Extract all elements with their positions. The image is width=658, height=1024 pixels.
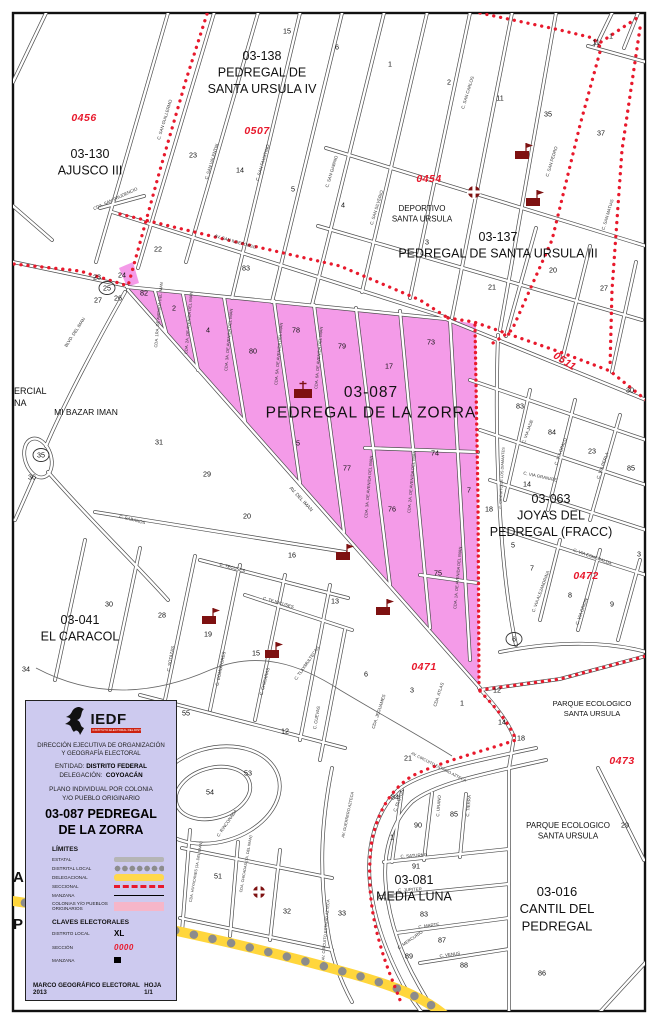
org-line1: DIRECCIÓN EJECUTIVA DE ORGANIZACIÓN	[26, 742, 176, 750]
block-number: 6	[364, 670, 368, 679]
colonia-label: SANTA URSULA	[538, 832, 599, 841]
colonia-label: SANTA URSULA	[564, 709, 621, 718]
block-number: 1	[388, 60, 392, 69]
iedf-logo: IEDF INSTITUTO ELECTORAL DEL DISTRITO FE…	[26, 706, 176, 738]
block-number: 3	[425, 238, 429, 247]
delegacional-swatch	[114, 874, 164, 881]
plano-line1: PLANO INDIVIDUAL POR COLONIA	[26, 786, 176, 795]
colonia-label: EL CARACOL	[41, 630, 120, 644]
block-number: 21	[488, 283, 496, 292]
legend-panel: IEDF INSTITUTO ELECTORAL DEL DISTRITO FE…	[25, 700, 177, 1001]
block-number: 27	[94, 296, 102, 305]
block-number: 4	[341, 201, 345, 210]
edge-label-fragment: ERCIAL	[14, 386, 47, 396]
colonia-label: 03-081	[395, 873, 434, 887]
block-number: 82	[140, 289, 148, 298]
block-number: 7	[530, 564, 534, 573]
block-number: 83	[420, 910, 428, 919]
block-number: 1	[390, 833, 394, 842]
clave-row-manzana: MANZANA 00	[52, 957, 166, 963]
block-number: 74	[431, 449, 439, 458]
entidad-row: ENTIDAD: DISTRITO FEDERAL	[26, 763, 176, 772]
colonia-label: 03-087	[344, 384, 398, 401]
legend-label: DISTRITAL LOCAL	[52, 866, 114, 871]
iedf-logo-tagline: INSTITUTO ELECTORAL DEL DISTRITO FEDERAL	[91, 728, 141, 733]
block-number: 30	[626, 386, 634, 395]
clave-label: DISTRITO LOCAL	[52, 931, 114, 936]
block-number: 29	[621, 821, 629, 830]
clave-value-manzana: 00	[114, 957, 121, 963]
block-number: 8	[568, 591, 572, 600]
delegacion-row: DELEGACIÓN: COYOACÁN	[26, 772, 176, 781]
legend-row-delegacional: DELEGACIONAL	[52, 874, 166, 881]
block-number: 5	[291, 185, 295, 194]
legend-label: COLONIAS Y/O PUEBLOS ORIGINARIOS	[52, 901, 114, 912]
block-number: 85	[450, 810, 458, 819]
block-number: 51	[214, 872, 222, 881]
colonia-label: PEDREGAL DE	[218, 66, 306, 80]
block-number: 75	[434, 569, 442, 578]
legend-row-estatal: ESTATAL	[52, 856, 166, 862]
block-number: 9	[610, 600, 614, 609]
iedf-logo-icon	[62, 706, 88, 738]
colonia-label: 03-063	[532, 492, 571, 506]
block-number: 12	[281, 727, 289, 736]
block-number: 18	[485, 505, 493, 514]
block-number: 23	[588, 447, 596, 456]
block-number: 86	[538, 969, 546, 978]
colonia-label: MI BAZAR IMAN	[54, 407, 118, 417]
iedf-logo-text: IEDF	[91, 712, 141, 727]
block-number: 12	[493, 686, 501, 695]
block-number: 80	[249, 347, 257, 356]
block-number: 22	[154, 245, 162, 254]
block-number: 11	[496, 94, 503, 103]
block-number: 1	[460, 699, 464, 708]
legend-label: MANZANA	[52, 893, 114, 898]
block-number: 87	[438, 936, 446, 945]
block-number: 35	[544, 110, 552, 119]
clave-label: SECCIÓN	[52, 945, 114, 950]
block-number: 34	[22, 665, 30, 674]
colonia-title: 03-087 PEDREGAL DE LA ZORRA	[26, 807, 176, 838]
block-number: 25	[103, 284, 111, 293]
block-number: 3	[410, 686, 414, 695]
legend-row-distrital: DISTRITAL LOCAL	[52, 865, 166, 872]
block-number: 5	[296, 439, 300, 448]
block-number: 6	[512, 635, 516, 644]
block-number: 29	[203, 470, 211, 479]
block-number: 83	[242, 264, 250, 273]
block-number: 23	[189, 151, 197, 160]
block-number: 13	[331, 597, 339, 606]
clave-label: MANZANA	[52, 958, 114, 963]
block-number: 15	[252, 649, 260, 658]
block-number: 79	[338, 342, 346, 351]
legend-row-colonias: COLONIAS Y/O PUEBLOS ORIGINARIOS	[52, 901, 166, 912]
block-number: 33	[338, 909, 346, 918]
block-number: 85	[627, 464, 635, 473]
block-number: 55	[182, 709, 190, 718]
clave-row-seccion: SECCIÓN 0000	[52, 943, 166, 952]
block-number: 77	[343, 464, 351, 473]
edge-label-fragment: P	[13, 916, 23, 933]
block-number: 14	[523, 480, 531, 489]
block-number: 53	[244, 769, 252, 778]
block-number: 90	[414, 821, 422, 830]
block-number: 88	[460, 961, 468, 970]
limites-title: LÍMITES	[52, 846, 176, 853]
plano-block: PLANO INDIVIDUAL POR COLONIA Y/O PUEBLO …	[26, 786, 176, 803]
section-code: 0473	[609, 755, 634, 767]
colonia-label: PEDREGAL	[522, 918, 593, 933]
block-number: 37	[597, 129, 605, 138]
colonia-label: PEDREGAL (FRACC)	[490, 525, 612, 539]
clave-row-distrito: DISTRITO LOCAL XL	[52, 929, 166, 938]
section-code: 0507	[244, 125, 270, 137]
marco-geografico-text: MARCO GEOGRÁFICO ELECTORAL 2013	[33, 982, 144, 996]
block-number: 83	[516, 402, 524, 411]
colonia-label: AJUSCO III	[58, 164, 123, 178]
org-line2: Y GEOGRAFÍA ELECTORAL	[26, 750, 176, 758]
colonia-label: DEPORTIVO	[399, 204, 446, 213]
block-number: 89	[405, 952, 413, 961]
clave-value-seccion: 0000	[114, 943, 134, 952]
block-number: 30	[105, 600, 113, 609]
block-number: 23	[93, 273, 101, 282]
block-number: 24	[118, 271, 126, 280]
block-number: 5	[511, 541, 515, 550]
block-number: 11	[592, 38, 599, 47]
colonia-label: 03-041	[61, 613, 100, 627]
colonia-label: PEDREGAL DE LA ZORRA	[266, 404, 477, 421]
legend-footer: MARCO GEOGRÁFICO ELECTORAL 2013 HOJA 1/1	[26, 982, 176, 996]
block-number: 26	[114, 294, 122, 303]
legend-label: DELEGACIONAL	[52, 875, 114, 880]
block-number: 16	[288, 551, 296, 560]
edge-label-fragment: A	[13, 869, 24, 886]
org-title: DIRECCIÓN EJECUTIVA DE ORGANIZACIÓN Y GE…	[26, 742, 176, 758]
block-number: 2	[172, 304, 176, 313]
section-code: 0472	[573, 570, 598, 582]
colonia-label: 03-016	[537, 884, 577, 899]
edge-label-fragment: NA	[14, 398, 27, 408]
estatal-swatch	[114, 857, 164, 862]
colonias-swatch	[114, 902, 164, 911]
colonia-label: JOYAS DEL	[517, 509, 585, 523]
block-number: 35	[37, 451, 45, 460]
block-number: 19	[204, 630, 212, 639]
colonia-label: PEDREGAL DE SANTA URSULA III	[398, 247, 597, 261]
block-number: 54	[206, 788, 214, 797]
block-number: 73	[427, 338, 435, 347]
colonia-label: PARQUE ECOLOGICO	[553, 699, 632, 708]
block-number: 78	[292, 326, 300, 335]
block-number: 14	[236, 166, 244, 175]
block-number: 14	[498, 718, 506, 727]
block-number: 27	[600, 284, 608, 293]
colonia-label: 03-137	[479, 230, 518, 244]
claves-title: CLAVES ELECTORALES	[52, 919, 176, 926]
block-number: 17	[385, 362, 393, 371]
block-number: 31	[155, 438, 163, 447]
block-number: 20	[243, 512, 251, 521]
plano-line2: Y/O PUEBLO ORIGINARIO	[26, 795, 176, 804]
block-number: 6	[335, 43, 339, 52]
manzana-swatch	[114, 895, 164, 896]
block-number: 36	[28, 473, 36, 482]
block-number: 7	[467, 486, 471, 495]
distrital-swatch	[114, 865, 164, 872]
hoja-text: HOJA 1/1	[144, 982, 169, 996]
block-number: 84	[548, 428, 556, 437]
map-sheet: 03-138PEDREGAL DESANTA URSULA IV03-130AJ…	[0, 0, 658, 1024]
colonia-label: SANTA URSULA	[392, 215, 453, 224]
block-number: 20	[549, 266, 557, 275]
legend-label: SECCIONAL	[52, 884, 114, 889]
legend-label: ESTATAL	[52, 857, 114, 862]
block-number: 32	[283, 907, 291, 916]
colonia-label: PARQUE ECOLOGICO	[526, 821, 610, 830]
block-number: 15	[283, 27, 291, 36]
colonia-label: CANTIL DEL	[520, 901, 595, 916]
legend-row-manzana: MANZANA	[52, 892, 166, 898]
block-number: 18	[517, 734, 525, 743]
entity-block: ENTIDAD: DISTRITO FEDERAL DELEGACIÓN: CO…	[26, 763, 176, 781]
colonia-label: 03-130	[71, 147, 110, 161]
block-number: 76	[388, 505, 396, 514]
colonia-label: 03-138	[243, 49, 282, 63]
block-number: 4	[206, 326, 210, 335]
block-number: 1	[609, 32, 613, 41]
block-number: 28	[158, 611, 166, 620]
block-number: 2	[447, 78, 451, 87]
section-code: 0456	[71, 112, 96, 124]
block-number: 91	[412, 862, 420, 871]
legend-row-seccional: SECCIONAL	[52, 884, 166, 890]
colonia-title-line2: DE LA ZORRA	[26, 823, 176, 839]
colonia-label: SANTA URSULA IV	[208, 82, 317, 96]
section-code: 0454	[416, 173, 441, 185]
clave-value-distrito: XL	[114, 929, 124, 938]
section-code: 0471	[411, 661, 436, 673]
block-number: 3	[637, 550, 641, 559]
seccional-swatch	[114, 885, 164, 888]
colonia-title-line1: 03-087 PEDREGAL	[26, 807, 176, 823]
